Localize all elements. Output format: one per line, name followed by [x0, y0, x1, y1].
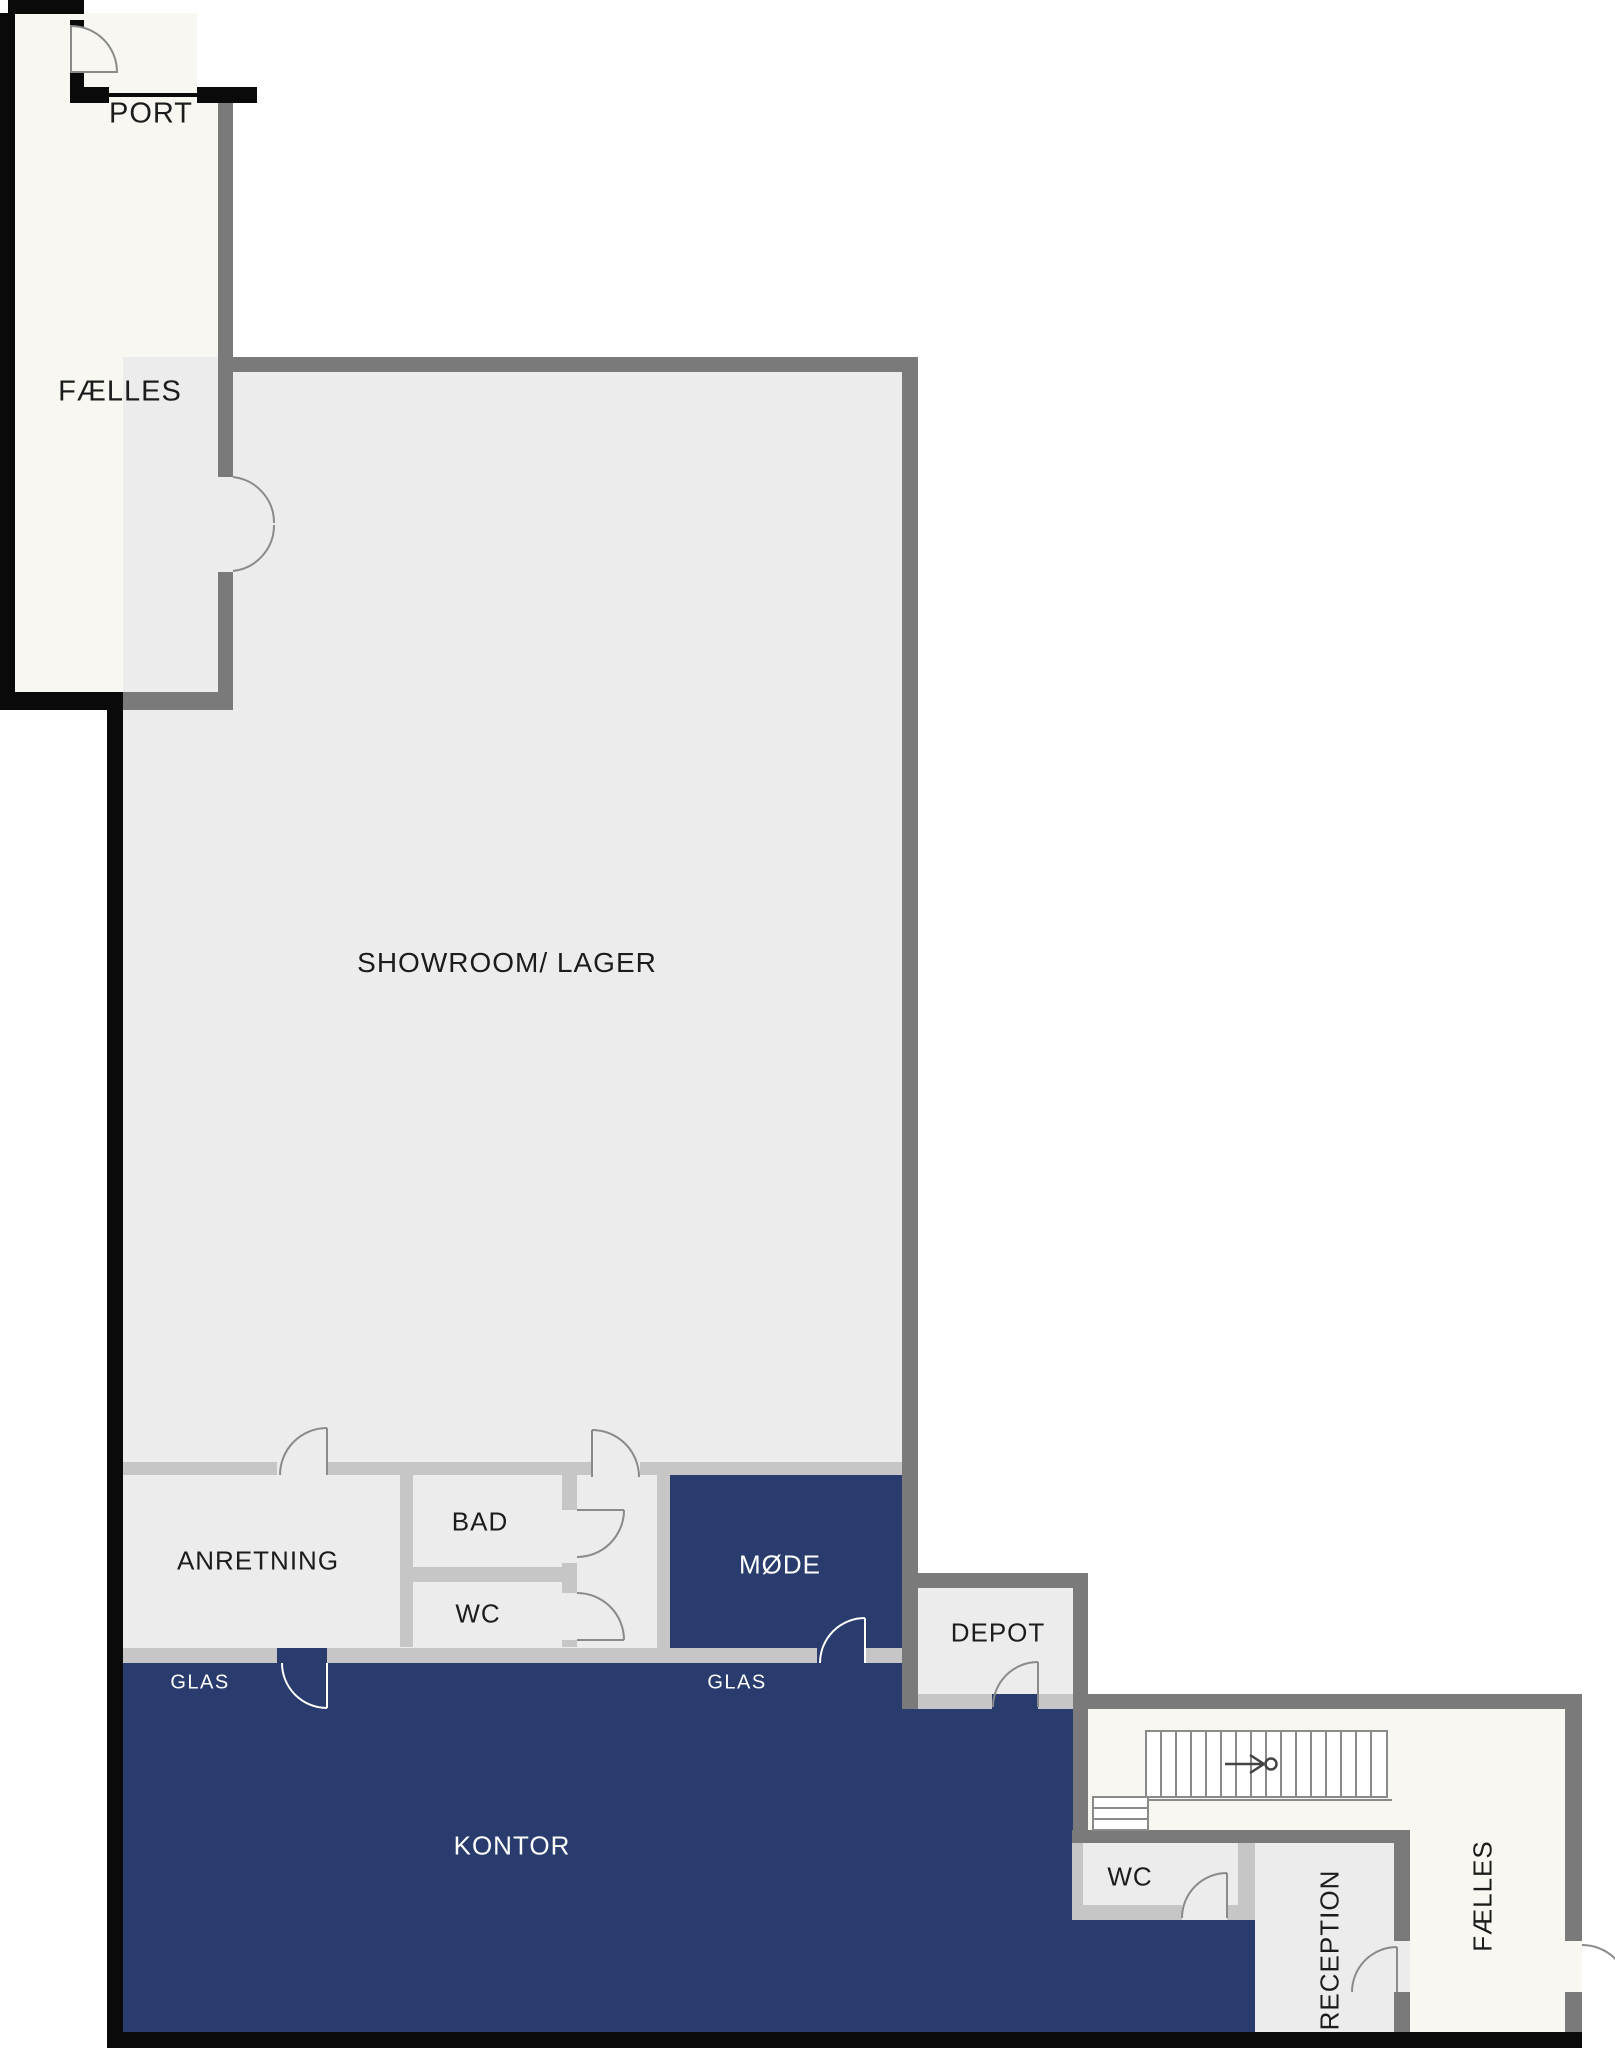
wall-segment	[902, 357, 918, 1709]
room-showroom	[123, 357, 918, 1475]
label-glas-left: GLAS	[170, 1672, 229, 1695]
wall-segment	[413, 1567, 562, 1582]
label-showroom: SHOWROOM/ LAGER	[357, 947, 657, 979]
wall-segment-exterior	[70, 20, 84, 28]
label-faelles-bottom: FÆLLES	[1468, 1840, 1499, 1952]
wall-segment	[902, 1573, 1088, 1588]
label-wc-bottom: WC	[1107, 1862, 1152, 1893]
wall-segment	[1227, 1905, 1238, 1920]
room-kontor-east	[902, 1694, 1088, 2048]
wall-segment-exterior	[107, 2032, 1582, 2048]
wall-segment	[218, 572, 233, 710]
wall-segment	[640, 1462, 902, 1475]
wall-segment-glass	[123, 1648, 277, 1663]
wall-segment	[1072, 1843, 1083, 1920]
label-wc-mid: WC	[455, 1599, 500, 1630]
label-reception: RECEPTION	[1315, 1870, 1346, 2031]
wall-segment	[562, 1475, 577, 1510]
wall-segment	[1565, 1709, 1582, 1941]
label-anretning: ANRETNING	[177, 1546, 339, 1577]
wall-segment	[1565, 1992, 1582, 2032]
wall-segment	[1238, 1843, 1255, 1920]
room-port-driveway	[15, 13, 197, 87]
wall-segment-glass	[327, 1648, 817, 1663]
label-faelles-corridor: FÆLLES	[58, 376, 182, 409]
wall-segment	[1394, 1843, 1410, 1941]
floor-plan: PORT FÆLLES SHOWROOM/ LAGER ANRETNING BA…	[0, 0, 1615, 2048]
wall-segment	[1083, 1905, 1182, 1920]
wall-segment	[327, 1462, 592, 1475]
wall-segment	[1038, 1694, 1073, 1709]
wall-segment	[1072, 1830, 1410, 1843]
wall-segment	[123, 692, 233, 710]
label-glas-right: GLAS	[707, 1672, 766, 1695]
wall-segment-exterior	[84, 87, 109, 103]
label-port: PORT	[109, 98, 193, 131]
wall-segment	[562, 1563, 577, 1593]
wall-segment	[218, 357, 918, 372]
room-kontor-southeast	[1072, 1905, 1255, 2048]
wall-segment-exterior	[0, 13, 15, 692]
wall-segment	[657, 1475, 670, 1652]
port-gate-line	[109, 93, 197, 97]
label-bad: BAD	[452, 1507, 508, 1538]
wall-segment	[400, 1475, 413, 1647]
wall-segment	[562, 1640, 577, 1647]
wall-segment-exterior	[8, 0, 84, 14]
wall-segment	[218, 103, 233, 477]
wall-segment	[918, 1694, 992, 1709]
wall-segment-exterior	[197, 87, 257, 103]
faelles-exterior-door	[1582, 1945, 1615, 1992]
wall-segment	[123, 1462, 277, 1475]
label-kontor: KONTOR	[454, 1831, 571, 1862]
wall-segment-exterior	[70, 73, 84, 103]
wall-segment	[1088, 1694, 1582, 1709]
room-vestibule	[562, 1462, 670, 1663]
wall-segment-exterior	[0, 692, 123, 710]
label-moede: MØDE	[739, 1550, 821, 1581]
wall-segment	[1073, 1588, 1088, 1830]
wall-segment-exterior	[107, 710, 123, 2048]
wall-segment	[1394, 1992, 1410, 2032]
label-depot: DEPOT	[951, 1618, 1046, 1649]
